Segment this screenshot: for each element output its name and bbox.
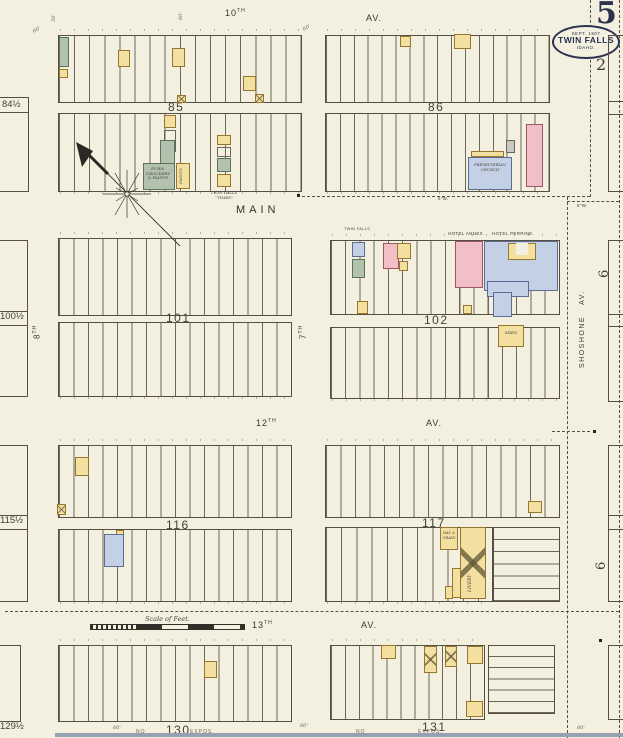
building-frame (381, 645, 396, 659)
lot-tick (0, 112, 28, 113)
label-twin-falls-times: TWIN FALLS “TIMES” (206, 191, 242, 200)
street-label-13th-av: AV. (361, 620, 377, 630)
adjacent-sheet-number-6-lower: 6 (594, 562, 609, 570)
label-twin-falls-office: TWIN FALLS (344, 227, 370, 232)
block-130-lots (58, 645, 292, 722)
block-131-east-lots (488, 645, 555, 714)
building-frame-barn (445, 646, 457, 667)
building-frame-barn (57, 504, 66, 515)
street-label-12th: 12TH (256, 418, 277, 428)
building-frame-barn (177, 95, 186, 103)
street-label-10th: 10TH (225, 8, 246, 18)
compass-north-arrow (52, 128, 187, 250)
adjacent-sheet-number-2: 2 (596, 55, 606, 74)
building-special (59, 37, 69, 67)
building-office (352, 242, 365, 257)
scale-caption: Scale of Feet. (90, 615, 245, 623)
block-101-south-lots (58, 322, 292, 397)
block-number-86: 86 (428, 100, 444, 114)
scale-bar (90, 624, 245, 630)
water-main-line-12th-av (552, 431, 590, 432)
lot-numbers-row (60, 29, 300, 31)
street-label-10th-av: AV. (366, 13, 382, 23)
lot-numbers-row (327, 192, 547, 194)
lot-tick (0, 325, 27, 326)
block-117-north-lots (325, 445, 560, 518)
scale-bar-fine (91, 625, 136, 629)
building-office-frame (397, 243, 411, 259)
lot-tick (609, 314, 623, 315)
building-frame (172, 48, 185, 67)
building-frame (463, 305, 472, 314)
lot-tick (609, 101, 623, 102)
label-shed: SHED (498, 331, 524, 336)
building-frame (528, 501, 542, 513)
building-frame (467, 646, 483, 664)
lot-numbers-row (60, 602, 290, 604)
block-116-south-lots (58, 529, 292, 602)
dimension-60ft: 60' (300, 723, 308, 729)
label-presbyterian-church: PRESBYTERIAN CHURCH (467, 163, 513, 172)
lot-numbers-row (60, 439, 290, 441)
block-number-129-edge: 129½ (0, 721, 24, 732)
block-number-116: 116 (166, 518, 190, 532)
building-frame (217, 135, 231, 145)
building-frame (466, 701, 483, 717)
building-frame (454, 34, 471, 49)
lot-numbers-row (327, 602, 492, 604)
block-number-115-edge: 115½ (0, 515, 23, 526)
water-main-size-label: 6"W. (577, 203, 588, 208)
building-shed (498, 325, 524, 347)
block-number-84-edge: 84½ (2, 99, 21, 110)
block-102-south-lots (330, 327, 560, 399)
label-hotel-perrine: HOTEL PERRINE. (492, 231, 534, 236)
lot-numbers-row (327, 439, 558, 441)
building-frame (399, 261, 408, 271)
scale-of-feet: Scale of Feet. (90, 615, 245, 630)
building-times-printing (217, 158, 231, 172)
block-116-north-lots (58, 445, 292, 518)
hydrant-dot (593, 430, 596, 433)
building-frame (217, 174, 231, 187)
building-frame (400, 36, 411, 47)
water-main-line-main-st-east (567, 201, 619, 202)
dimension-80ft: 80' (577, 725, 585, 731)
street-label-main: MAIN (236, 204, 280, 216)
partial-block-right-4 (608, 645, 623, 720)
block-117-south-east-lots (492, 527, 560, 602)
lot-tick (0, 529, 27, 530)
block-85-north-lots (58, 35, 302, 103)
building-hotel-annex (455, 241, 483, 288)
label-livery: LIVERY (469, 574, 474, 592)
building-frame (118, 50, 130, 67)
match-line-vertical-lower (567, 197, 568, 738)
lot-tick (609, 114, 623, 115)
building-stone-hall (104, 534, 124, 567)
hydrant-dot (599, 639, 602, 642)
partial-block-right-2 (608, 240, 623, 402)
dimension-60ft: 60' (302, 24, 312, 33)
building-stone-rear (493, 292, 512, 317)
lot-tick (609, 529, 623, 530)
lot-numbers-row (327, 29, 547, 31)
building-livery-annex (452, 568, 461, 598)
block-86-south-lots (325, 113, 550, 192)
lot-numbers-row (60, 397, 290, 399)
building-outline (217, 147, 231, 157)
building-frame (445, 586, 453, 599)
hydrant-dot (297, 194, 300, 197)
block-number-101: 101 (166, 311, 191, 325)
label-hay-grain: HAY & GRAIN (440, 531, 458, 540)
partial-block-right-3 (608, 445, 623, 602)
block-number-100-edge: 100½ (0, 311, 24, 322)
building-frame-barn (424, 646, 437, 673)
scale-bar-coarse (136, 625, 244, 629)
block-number-102: 102 (424, 313, 449, 327)
street-label-13th: 13TH (252, 620, 273, 630)
block-86-north-lots (325, 35, 550, 103)
street-label-12th-av: AV. (426, 418, 442, 428)
building-hotel-perrine-court (516, 243, 528, 255)
building-church-steeple (506, 140, 515, 153)
street-label-shoshone-av: SHOSHONE AV. (579, 246, 586, 368)
block-131-west-lots (330, 645, 485, 720)
building-frame (75, 457, 89, 476)
scan-edge-strip (55, 733, 623, 737)
dimension-60ft: 60' (32, 26, 42, 35)
lot-tick (609, 515, 623, 516)
water-main-size-label: 6"W. (438, 196, 449, 201)
building-brick-hall (526, 124, 543, 187)
lot-numbers-row (332, 639, 483, 641)
partial-block-129 (0, 645, 21, 722)
building-printing-office (352, 259, 365, 278)
partial-block-right-1 (608, 35, 623, 192)
partial-block-84 (0, 97, 29, 192)
building-frame (357, 301, 368, 314)
building-frame (204, 661, 217, 678)
street-label-7th: 7TH (298, 325, 308, 339)
lot-numbers-row (60, 639, 290, 641)
dimension-60ft: 60' (113, 725, 121, 731)
lot-numbers-row (332, 399, 558, 401)
building-frame (243, 76, 256, 91)
street-label-8th: 8TH (32, 325, 42, 339)
dimension-50ft: 50' (51, 14, 57, 22)
lot-tick (609, 326, 623, 327)
building-frame (164, 115, 176, 128)
sanborn-map-sheet: 10TH AV. MAIN 12TH AV. 13TH AV. 7TH 8TH … (0, 0, 623, 738)
building-frame-barn (255, 94, 264, 103)
water-main-line-13th-av (5, 611, 619, 612)
label-hotel-annex: HOTEL ANNEX. (448, 231, 485, 236)
dimension-60ft: 60' (178, 12, 184, 20)
building-frame (59, 69, 68, 78)
